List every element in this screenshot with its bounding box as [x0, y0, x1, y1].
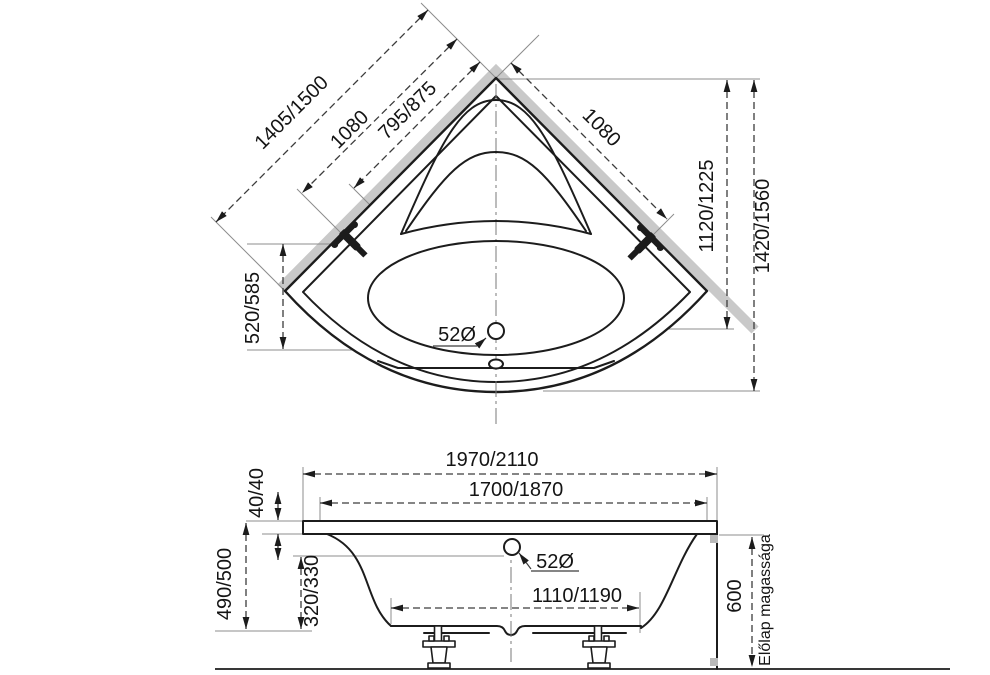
overflow-slot	[489, 360, 503, 369]
dim-label-side-right: 1080	[578, 104, 625, 151]
bathtub-technical-drawing: 1405/1500 1080 795/875 1080 1120/1225 14…	[0, 0, 990, 675]
dim-label-vertical-inner: 1120/1225	[696, 159, 718, 252]
dim-label-depth-inner: 320/330	[301, 555, 323, 627]
dim-label-rim-thickness: 40/40	[246, 468, 268, 518]
dim-label-bottom-length: 1110/1190	[532, 585, 622, 607]
top-view: 1405/1500 1080 795/875 1080 1120/1225 14…	[211, 3, 774, 424]
dim-label-height-total: 490/500	[214, 548, 236, 620]
dim-label-vertical-outer: 1420/1560	[752, 179, 774, 274]
dim-label-side-full: 1405/1500	[251, 72, 333, 154]
dim-label-width-inner: 1700/1870	[469, 479, 564, 501]
side-view: 1970/2110 1700/1870 40/40 490/500 320/33…	[214, 449, 950, 669]
dim-label-side-wall: 1080	[326, 106, 373, 153]
dim-label-width-outer: 1970/2110	[445, 449, 538, 471]
panel-clip-bottom	[710, 658, 718, 666]
dim-label-panel-height: 600	[724, 579, 746, 612]
panel-height-caption: Előlap magassága	[757, 534, 774, 666]
drain-diameter-label: 52Ø	[438, 324, 476, 346]
dim-label-vertical-left: 520/585	[242, 272, 264, 344]
drawing-canvas: 1405/1500 1080 795/875 1080 1120/1225 14…	[0, 0, 990, 675]
overflow-hole	[504, 539, 520, 555]
panel-clip-top	[710, 535, 718, 543]
rim-profile	[303, 521, 717, 534]
drain-hole	[488, 323, 504, 339]
overflow-diameter-label: 52Ø	[536, 551, 574, 573]
